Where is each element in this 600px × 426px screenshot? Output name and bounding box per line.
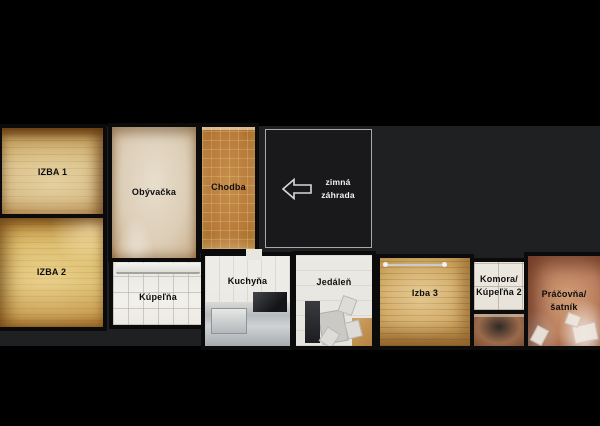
room-label-zimna-zahrada: zimná záhrada: [321, 176, 355, 202]
room-label-pracovna: Práčovňa/ šatník: [542, 288, 587, 314]
room-izba-2[interactable]: IZBA 2: [0, 218, 103, 327]
passage-floor[interactable]: [474, 314, 524, 346]
cooktop: [253, 292, 287, 312]
room-kupelna[interactable]: Kúpeľňa: [113, 262, 203, 325]
bathtub: [116, 263, 200, 274]
curtain-rod-end: [442, 262, 447, 267]
room-label-izba-1: IZBA 1: [38, 167, 67, 179]
laundry-item: [530, 325, 549, 346]
room-chodba[interactable]: Chodba: [202, 127, 255, 249]
room-pracovna-satnik[interactable]: Práčovňa/ šatník: [528, 256, 600, 346]
fridge: [305, 301, 320, 343]
room-izba-3[interactable]: Izba 3: [380, 258, 470, 346]
curtain-rod-end: [383, 262, 388, 267]
room-zimna-zahrada[interactable]: zimná záhrada: [265, 129, 372, 248]
curtain-rod: [385, 264, 447, 266]
room-label-izba-2: IZBA 2: [37, 267, 66, 279]
room-label-komora: Komora/ Kúpeľňa 2: [476, 273, 522, 299]
room-label-kuchyna: Kuchyňa: [205, 276, 290, 288]
room-jedalen[interactable]: Jedáleň: [296, 255, 372, 346]
room-label-kupelna: Kúpeľňa: [139, 292, 177, 304]
room-label-jedalen: Jedáleň: [296, 277, 372, 289]
door-sill: [246, 249, 262, 260]
room-komora-kupelna-2[interactable]: Komora/ Kúpeľňa 2: [474, 262, 524, 310]
room-label-chodba: Chodba: [211, 182, 246, 194]
room-kuchyna[interactable]: Kuchyňa: [205, 256, 290, 346]
floorplan-viewer: IZBA 1 Obývačka Chodba zimná záhrada IZB…: [0, 0, 600, 426]
room-label-izba-3: Izba 3: [380, 288, 470, 300]
kitchen-sink: [211, 308, 247, 334]
room-izba-1[interactable]: IZBA 1: [2, 128, 103, 218]
room-label-obyvacka: Obývačka: [132, 187, 176, 199]
arrow-left-icon[interactable]: [282, 177, 312, 201]
room-obyvacka[interactable]: Obývačka: [112, 127, 196, 258]
